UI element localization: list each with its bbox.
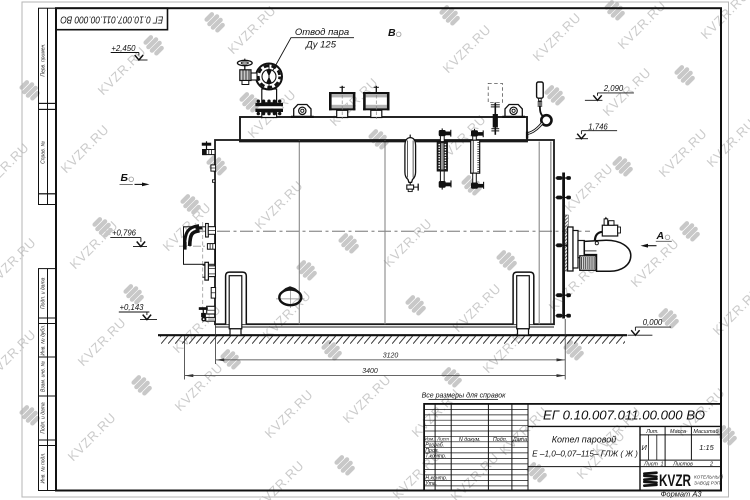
svg-text:KVZR.RU: KVZR.RU: [260, 288, 314, 342]
svg-text:Масса: Масса: [670, 429, 686, 435]
svg-text:1,746: 1,746: [588, 122, 608, 131]
svg-text:KVZR.RU: KVZR.RU: [656, 126, 710, 180]
svg-text:ЕГ 0.10.007.011.00.000 ВО: ЕГ 0.10.007.011.00.000 ВО: [543, 408, 705, 423]
svg-text:Перв. примен.: Перв. примен.: [41, 43, 47, 76]
svg-text:Е –1,0–0,07–115– ГЛЖ ( Ж ): Е –1,0–0,07–115– ГЛЖ ( Ж ): [532, 449, 638, 458]
svg-text:KVZR.RU: KVZR.RU: [75, 315, 129, 369]
svg-text:2,090: 2,090: [603, 84, 624, 93]
svg-text:Ду 125: Ду 125: [305, 40, 337, 51]
svg-text:Подп. и дата: Подп. и дата: [41, 402, 47, 434]
svg-text:KVZR: KVZR: [659, 472, 691, 490]
svg-text:N докум.: N докум.: [459, 437, 481, 443]
svg-text:KVZR.RU: KVZR.RU: [440, 22, 494, 76]
svg-text:Листов: Листов: [672, 461, 693, 467]
svg-text:Т.контр.: Т.контр.: [425, 454, 446, 460]
svg-text:Формат А3: Формат А3: [660, 490, 702, 499]
svg-text:Лист: Лист: [643, 461, 658, 467]
svg-text:KVZR.RU: KVZR.RU: [381, 216, 435, 270]
svg-text:1: 1: [661, 461, 664, 467]
svg-text:ЕГ 0.10.007.011.00.000 ВО: ЕГ 0.10.007.011.00.000 ВО: [60, 14, 163, 25]
svg-text:KVZR.RU: KVZR.RU: [58, 122, 112, 176]
svg-text:KVZR.RU: KVZR.RU: [0, 327, 39, 381]
svg-text:KVZR.RU: KVZR.RU: [225, 3, 279, 57]
svg-text:KVZR.RU: KVZR.RU: [0, 140, 32, 194]
svg-text:Инв. № подл.: Инв. № подл.: [41, 452, 47, 483]
svg-text:KVZR.RU: KVZR.RU: [530, 10, 584, 64]
svg-text:3400: 3400: [362, 368, 378, 375]
svg-text:1:15: 1:15: [699, 443, 714, 452]
svg-text:Взам. инв. №: Взам. инв. №: [41, 360, 47, 392]
svg-text:KVZR.RU: KVZR.RU: [704, 116, 750, 170]
svg-text:2: 2: [709, 461, 713, 467]
svg-text:Котел паровой: Котел паровой: [552, 434, 617, 444]
svg-text:KVZR.RU: KVZR.RU: [0, 235, 39, 289]
svg-text:KVZR.RU: KVZR.RU: [172, 360, 226, 414]
svg-text:KVZR.RU: KVZR.RU: [340, 372, 394, 426]
svg-text:+0,796: +0,796: [112, 228, 137, 237]
svg-text:Подп.: Подп.: [493, 437, 507, 443]
svg-text:KVZR.RU: KVZR.RU: [698, 0, 750, 42]
svg-text:И: И: [642, 443, 648, 452]
svg-text:Справ. №: Справ. №: [41, 141, 47, 164]
svg-text:КОТЕЛЬНЫЙ: КОТЕЛЬНЫЙ: [694, 473, 724, 480]
svg-text:Лист: Лист: [436, 437, 449, 442]
svg-text:KVZR.RU: KVZR.RU: [65, 410, 119, 464]
svg-text:Утв.: Утв.: [425, 481, 437, 487]
svg-text:Изм.: Изм.: [425, 437, 435, 442]
svg-text:KVZR.RU: KVZR.RU: [252, 178, 306, 232]
svg-text:Б: Б: [121, 172, 129, 184]
svg-text:А: А: [656, 230, 665, 242]
svg-text:Все размеры для справок: Все размеры для справок: [422, 392, 507, 400]
svg-text:В: В: [388, 27, 396, 39]
svg-text:KVZR.RU: KVZR.RU: [253, 458, 307, 500]
svg-text:KVZR.RU: KVZR.RU: [628, 236, 682, 290]
svg-text:0,000: 0,000: [643, 318, 663, 327]
svg-text:KVZR.RU: KVZR.RU: [562, 161, 616, 215]
svg-text:3120: 3120: [383, 352, 399, 359]
svg-text:Подп. и дата: Подп. и дата: [41, 277, 47, 309]
svg-text:Дата: Дата: [512, 437, 527, 443]
svg-text:ЗАВОД РЭП: ЗАВОД РЭП: [694, 481, 721, 486]
svg-text:Инв. № дубл.: Инв. № дубл.: [41, 325, 47, 356]
svg-text:Отвод пара: Отвод пара: [295, 27, 349, 38]
svg-text:Лит.: Лит.: [645, 429, 659, 435]
svg-text:Масштаб: Масштаб: [693, 429, 719, 435]
svg-text:KVZR.RU: KVZR.RU: [262, 387, 316, 441]
svg-text:KVZR.RU: KVZR.RU: [710, 284, 750, 338]
svg-text:+0,143: +0,143: [119, 303, 144, 312]
svg-text:+2,450: +2,450: [111, 44, 136, 53]
